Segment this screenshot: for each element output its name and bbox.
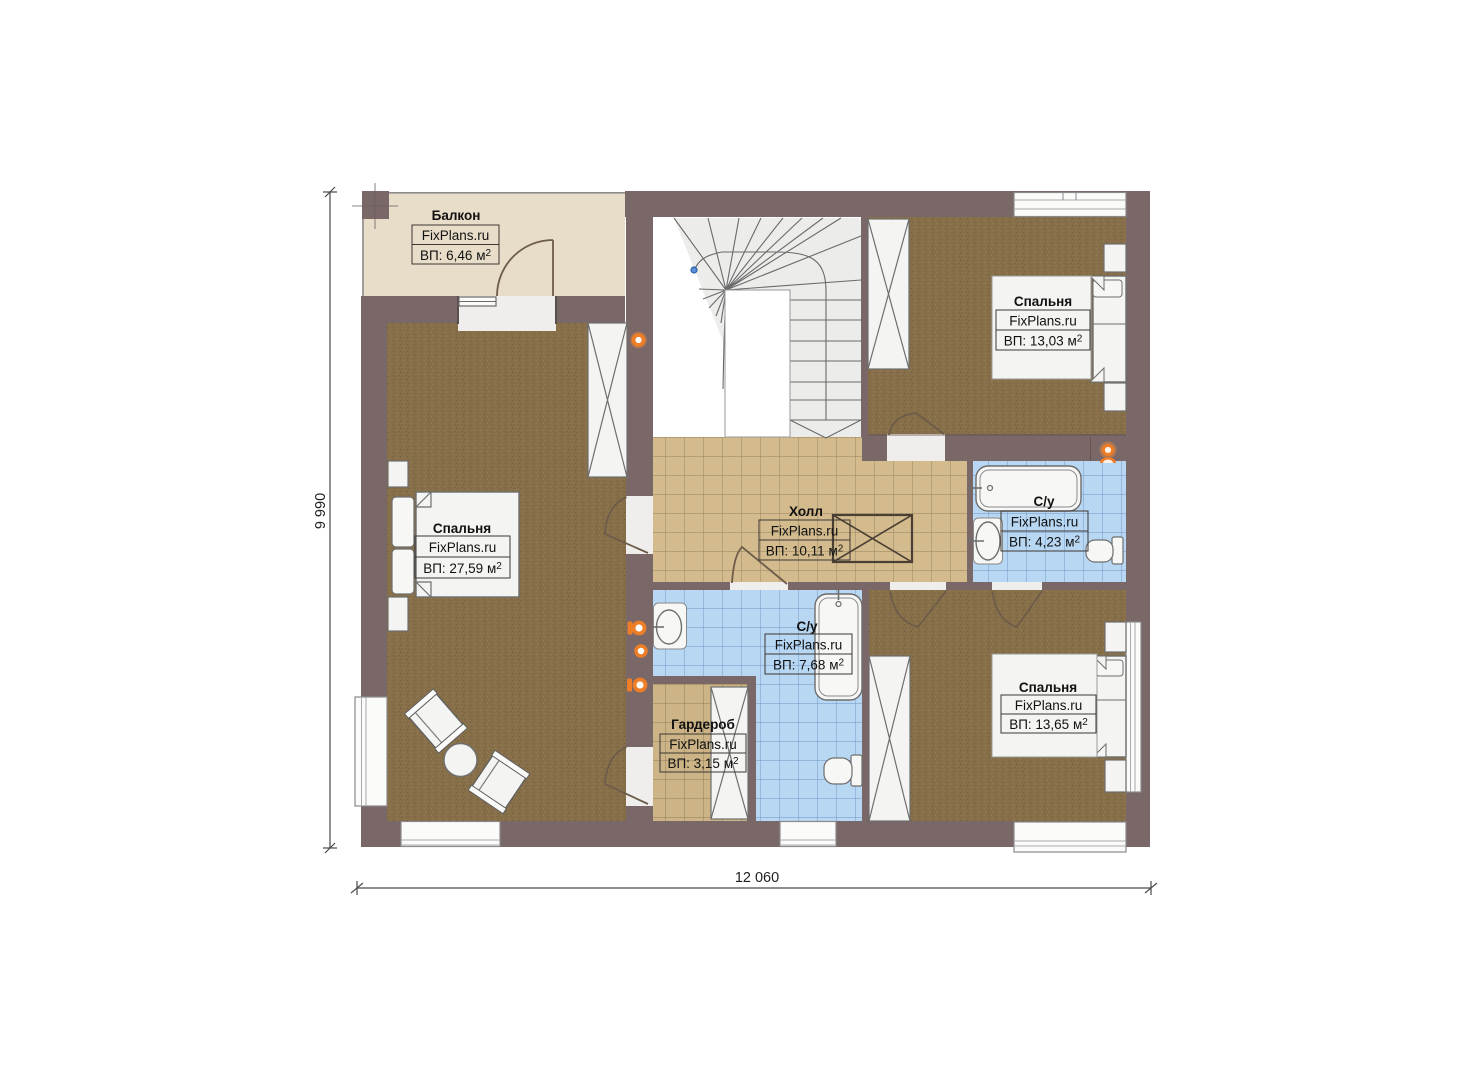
svg-text:ВП: 7,68 м2: ВП: 7,68 м2: [773, 658, 845, 673]
svg-text:ВП: 13,03 м2: ВП: 13,03 м2: [1004, 334, 1083, 349]
svg-text:Холл: Холл: [789, 504, 823, 519]
svg-text:FixPlans.ru: FixPlans.ru: [429, 540, 497, 555]
svg-text:Спальня: Спальня: [1019, 680, 1077, 695]
svg-text:FixPlans.ru: FixPlans.ru: [1009, 314, 1077, 329]
svg-text:FixPlans.ru: FixPlans.ru: [669, 737, 737, 752]
svg-text:С/у: С/у: [796, 619, 818, 634]
svg-text:ВП: 6,46 м2: ВП: 6,46 м2: [420, 248, 492, 263]
svg-text:С/у: С/у: [1033, 494, 1055, 509]
svg-text:ВП: 4,23 м2: ВП: 4,23 м2: [1009, 535, 1081, 550]
svg-text:Спальня: Спальня: [433, 521, 491, 536]
svg-text:FixPlans.ru: FixPlans.ru: [1015, 698, 1083, 713]
svg-text:FixPlans.ru: FixPlans.ru: [1011, 515, 1079, 530]
svg-text:ВП: 27,59 м2: ВП: 27,59 м2: [423, 561, 502, 576]
svg-text:ВП: 13,65 м2: ВП: 13,65 м2: [1009, 717, 1088, 732]
svg-text:ВП: 10,11 м2: ВП: 10,11 м2: [766, 544, 844, 559]
svg-text:FixPlans.ru: FixPlans.ru: [422, 228, 490, 243]
svg-text:Гардероб: Гардероб: [671, 717, 735, 732]
svg-text:12 060: 12 060: [735, 870, 779, 886]
svg-text:Спальня: Спальня: [1014, 294, 1072, 309]
svg-text:Балкон: Балкон: [432, 208, 481, 223]
svg-text:FixPlans.ru: FixPlans.ru: [771, 524, 839, 539]
svg-text:FixPlans.ru: FixPlans.ru: [775, 638, 843, 653]
svg-text:9 990: 9 990: [313, 493, 329, 529]
svg-text:ВП: 3,15 м2: ВП: 3,15 м2: [667, 756, 739, 771]
